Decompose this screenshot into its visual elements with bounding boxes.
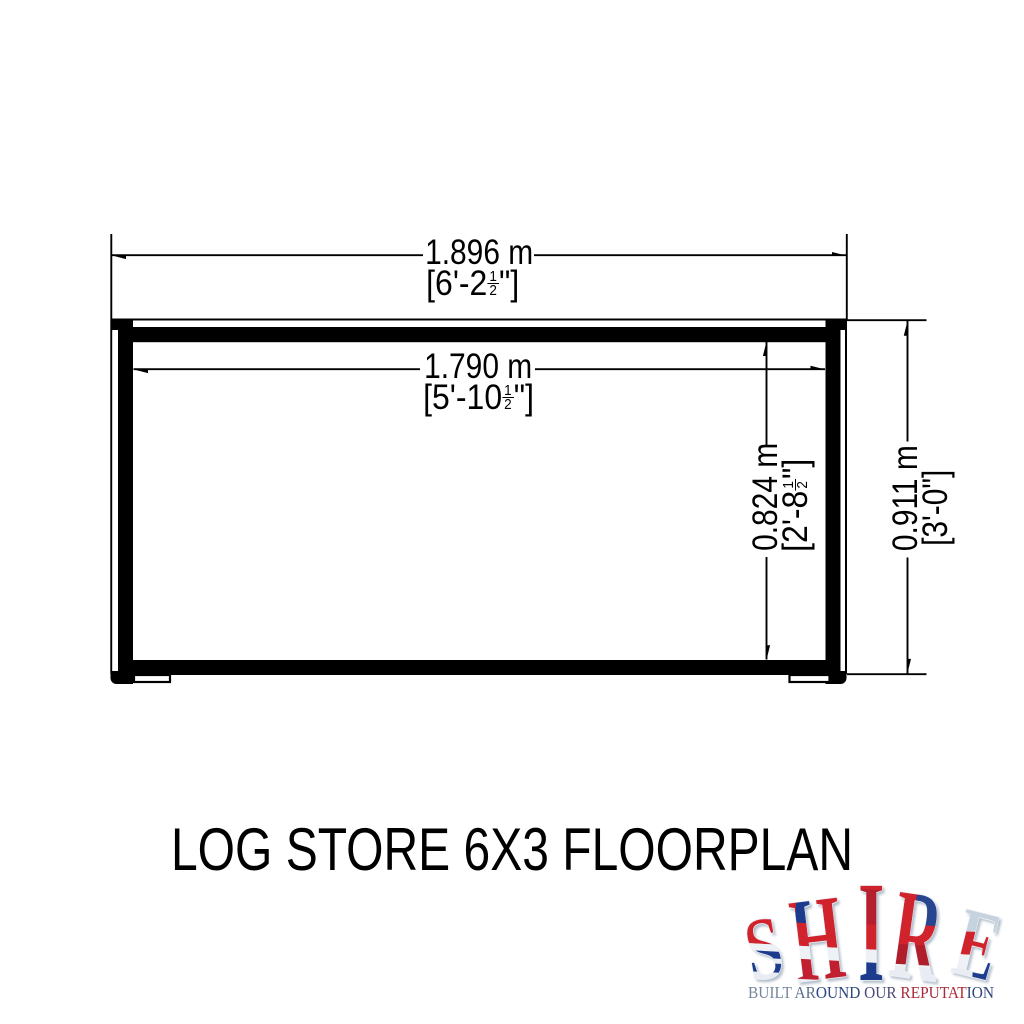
svg-text:BUILT AROUND OUR REPUTATION: BUILT AROUND OUR REPUTATION — [748, 983, 994, 1002]
